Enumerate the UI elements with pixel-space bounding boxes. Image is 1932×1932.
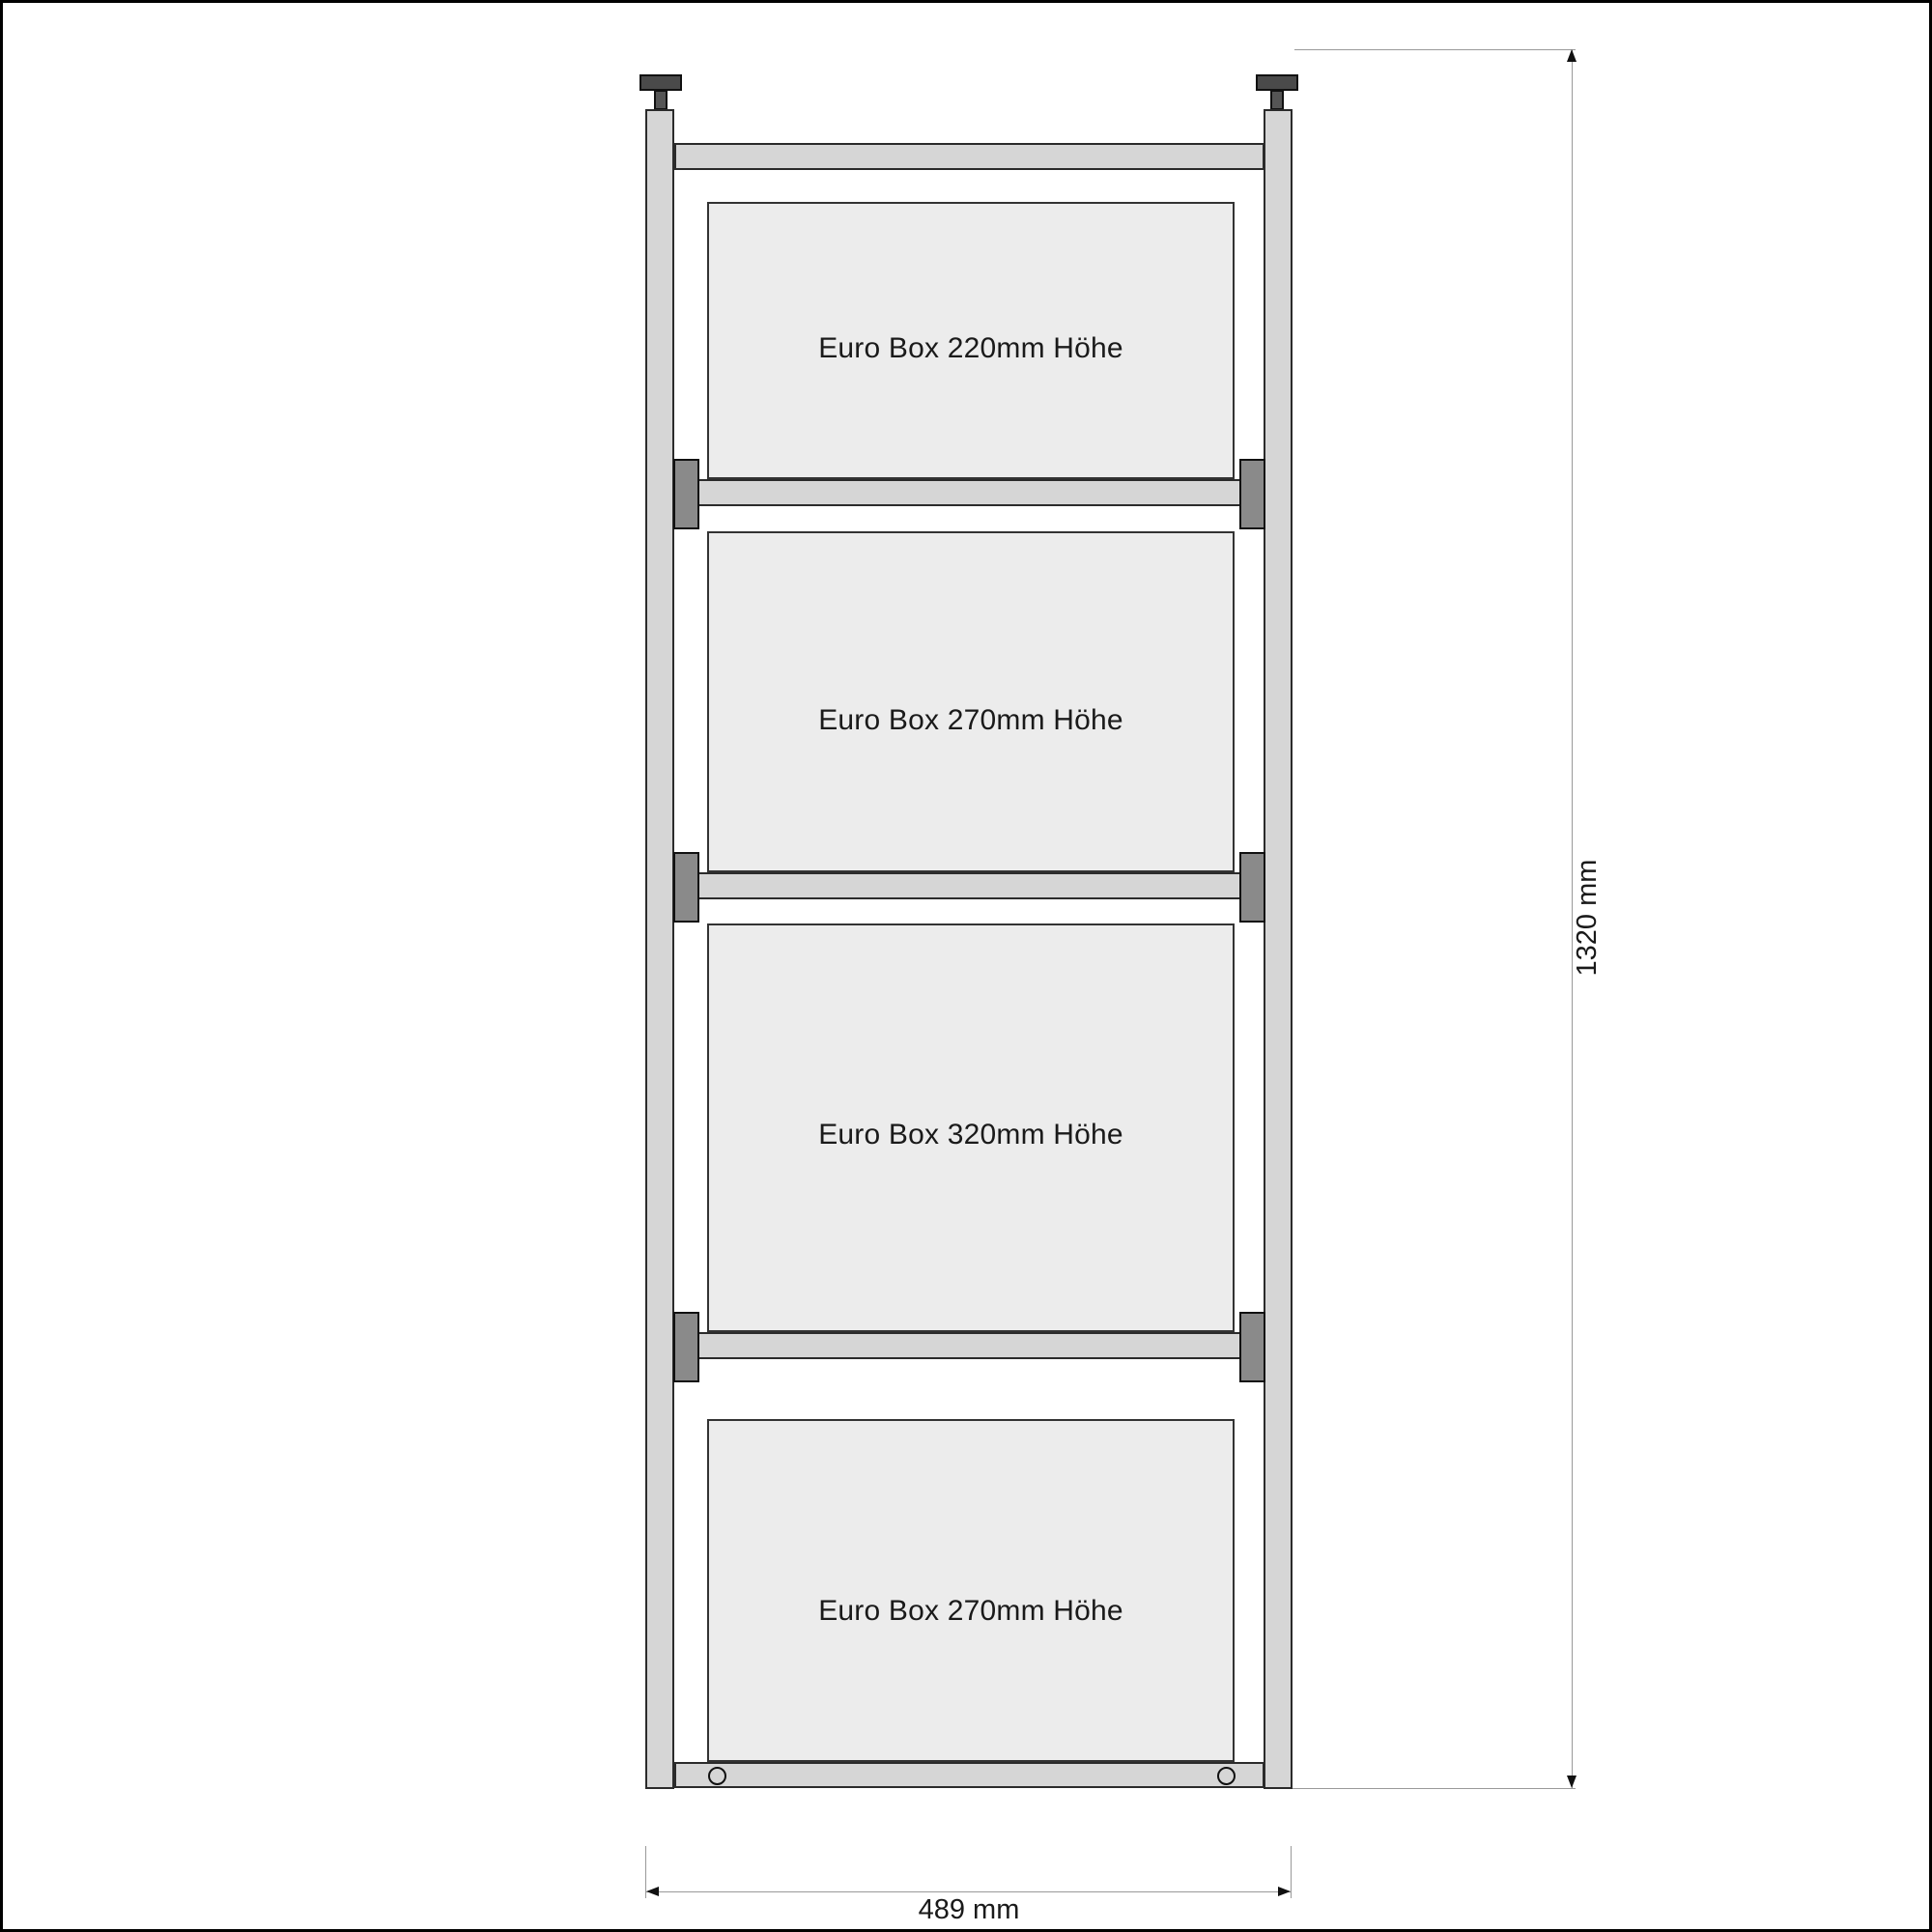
crossbar-3 — [697, 1332, 1241, 1359]
extension-line-width-right — [1291, 1846, 1292, 1898]
euro-box-3: Euro Box 320mm Höhe — [707, 923, 1235, 1332]
height-dimension-text: 1320 mm — [1572, 860, 1604, 977]
connector-block-right-2 — [1239, 852, 1265, 923]
connector-block-left-3 — [673, 1312, 699, 1382]
arrowhead-right-icon — [1278, 1887, 1291, 1896]
crossbar-1 — [697, 479, 1241, 506]
arrowhead-left-icon — [646, 1887, 659, 1896]
arrowhead-down-icon — [1567, 1776, 1577, 1788]
connector-block-left-2 — [673, 852, 699, 923]
width-dimension-text: 489 mm — [919, 1894, 1020, 1925]
horizontal-dimension-line — [646, 1891, 1291, 1892]
euro-box-2: Euro Box 270mm Höhe — [707, 531, 1235, 872]
euro-box-4: Euro Box 270mm Höhe — [707, 1419, 1235, 1762]
clamp-knob-stem-left-icon — [654, 90, 668, 110]
height-dimension-label: 1320 mm — [1520, 840, 1655, 995]
crossbar-2 — [697, 872, 1241, 899]
euro-box-3-label: Euro Box 320mm Höhe — [818, 1119, 1123, 1151]
clamp-knob-left-icon — [639, 74, 682, 91]
euro-box-1-label: Euro Box 220mm Höhe — [818, 332, 1123, 365]
euro-box-2-label: Euro Box 270mm Höhe — [818, 704, 1123, 737]
top-rail — [674, 143, 1264, 170]
bottom-rail — [674, 1762, 1264, 1788]
arrowhead-up-icon — [1567, 49, 1577, 62]
mounting-hole-left-icon — [708, 1767, 726, 1785]
mounting-hole-right-icon — [1217, 1767, 1236, 1785]
upright-post-right — [1264, 109, 1293, 1789]
upright-post-left — [645, 109, 674, 1789]
extension-line-top — [1294, 49, 1576, 50]
connector-block-right-1 — [1239, 459, 1265, 529]
width-dimension-label: 489 mm — [824, 1894, 1114, 1926]
shelf-technical-drawing: 1320 mm 489 mm Euro Box 220mm Höhe Euro … — [0, 0, 1932, 1932]
clamp-knob-right-icon — [1256, 74, 1298, 91]
euro-box-1: Euro Box 220mm Höhe — [707, 202, 1235, 479]
clamp-knob-stem-right-icon — [1270, 90, 1284, 110]
connector-block-left-1 — [673, 459, 699, 529]
extension-line-bottom — [1293, 1788, 1576, 1789]
euro-box-4-label: Euro Box 270mm Höhe — [818, 1595, 1123, 1628]
connector-block-right-3 — [1239, 1312, 1265, 1382]
